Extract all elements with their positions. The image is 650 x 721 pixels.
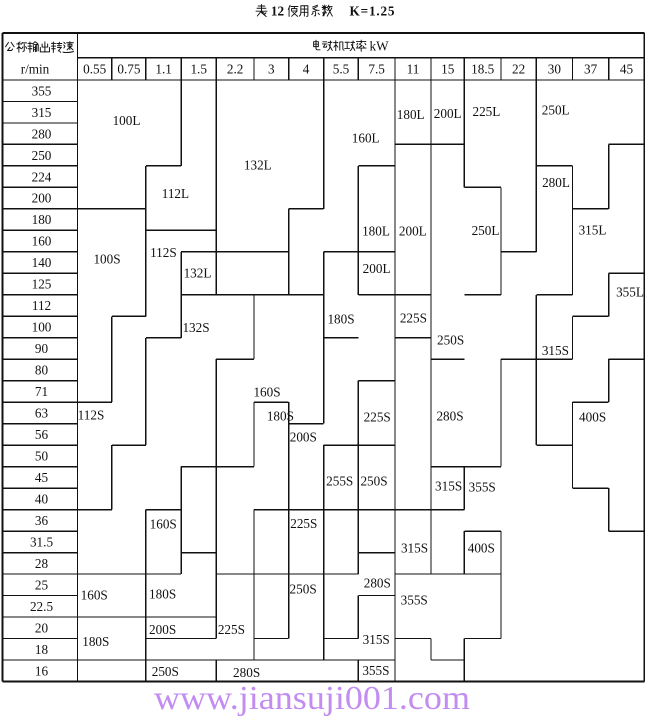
svg-text:www.jiansuji001.com: www.jiansuji001.com <box>154 680 470 717</box>
svg-text:132S: 132S <box>182 320 209 335</box>
svg-text:200: 200 <box>32 191 52 206</box>
svg-text:5.5: 5.5 <box>333 62 350 77</box>
svg-text:250S: 250S <box>290 582 317 597</box>
svg-text:250: 250 <box>32 148 52 163</box>
svg-text:40: 40 <box>35 492 49 507</box>
svg-text:63: 63 <box>35 406 49 421</box>
svg-text:355S: 355S <box>469 479 496 494</box>
svg-text:15: 15 <box>441 62 455 77</box>
svg-text:160: 160 <box>32 234 52 249</box>
svg-text:355L: 355L <box>616 285 644 300</box>
svg-text:100L: 100L <box>113 113 141 128</box>
svg-text:160L: 160L <box>352 131 380 146</box>
svg-text:3: 3 <box>268 62 275 77</box>
svg-text:100: 100 <box>32 320 52 335</box>
svg-text:71: 71 <box>35 384 48 399</box>
svg-text:400S: 400S <box>468 541 495 556</box>
svg-text:225S: 225S <box>364 409 391 424</box>
svg-text:18.5: 18.5 <box>471 62 494 77</box>
svg-text:180S: 180S <box>267 409 294 424</box>
svg-text:200L: 200L <box>399 224 427 239</box>
svg-text:255S: 255S <box>326 473 353 488</box>
svg-text:112: 112 <box>32 298 51 313</box>
svg-text:kW: kW <box>369 39 389 54</box>
svg-text:112L: 112L <box>162 186 189 201</box>
svg-text:250S: 250S <box>152 664 179 679</box>
svg-text:225S: 225S <box>400 311 427 326</box>
svg-text:20: 20 <box>35 620 49 635</box>
svg-text:50: 50 <box>35 449 49 464</box>
svg-text:280S: 280S <box>436 409 463 424</box>
svg-text:225S: 225S <box>218 622 245 637</box>
svg-text:1.1: 1.1 <box>155 62 171 77</box>
svg-text:0.55: 0.55 <box>83 62 106 77</box>
svg-text:22.5: 22.5 <box>30 599 53 614</box>
svg-text:112S: 112S <box>150 245 177 260</box>
svg-text:80: 80 <box>35 363 49 378</box>
svg-text:180S: 180S <box>149 587 176 602</box>
svg-text:22: 22 <box>512 62 525 77</box>
svg-text:315S: 315S <box>542 343 569 358</box>
svg-text:28: 28 <box>35 556 49 571</box>
svg-text:225L: 225L <box>472 104 500 119</box>
svg-text:280S: 280S <box>233 665 260 680</box>
svg-text:25: 25 <box>35 577 49 592</box>
svg-text:315S: 315S <box>363 632 390 647</box>
svg-text:355S: 355S <box>362 663 389 678</box>
svg-text:12: 12 <box>271 4 285 19</box>
svg-text:1.5: 1.5 <box>190 62 207 77</box>
svg-text:250L: 250L <box>472 223 500 238</box>
svg-text:37: 37 <box>584 62 598 77</box>
svg-text:225S: 225S <box>290 516 317 531</box>
svg-text:45: 45 <box>35 470 49 485</box>
svg-text:7.5: 7.5 <box>368 62 385 77</box>
svg-text:11: 11 <box>407 62 420 77</box>
svg-text:140: 140 <box>32 255 52 270</box>
svg-text:160S: 160S <box>253 384 280 399</box>
svg-text:160S: 160S <box>81 587 108 602</box>
svg-text:180L: 180L <box>362 224 390 239</box>
svg-text:30: 30 <box>548 62 562 77</box>
svg-text:180S: 180S <box>82 634 109 649</box>
svg-text:132L: 132L <box>244 157 272 172</box>
svg-text:132L: 132L <box>184 266 212 281</box>
svg-text:315S: 315S <box>435 479 462 494</box>
svg-text:315L: 315L <box>579 222 607 237</box>
svg-text:0.75: 0.75 <box>117 62 140 77</box>
svg-text:45: 45 <box>620 62 634 77</box>
svg-text:224: 224 <box>32 169 52 184</box>
svg-text:400S: 400S <box>579 410 606 425</box>
svg-text:250S: 250S <box>360 473 387 488</box>
svg-text:31.5: 31.5 <box>30 534 53 549</box>
svg-text:180: 180 <box>32 212 52 227</box>
svg-text:180S: 180S <box>327 312 354 327</box>
svg-text:18: 18 <box>35 642 49 657</box>
svg-text:200S: 200S <box>290 430 317 445</box>
svg-text:200L: 200L <box>363 261 391 276</box>
svg-text:16: 16 <box>35 663 49 678</box>
svg-text:112S: 112S <box>78 407 105 422</box>
svg-text:280S: 280S <box>364 575 391 590</box>
svg-text:90: 90 <box>35 341 49 356</box>
svg-text:2.2: 2.2 <box>227 62 243 77</box>
svg-text:4: 4 <box>303 62 310 77</box>
svg-text:36: 36 <box>35 513 49 528</box>
svg-text:315S: 315S <box>401 541 428 556</box>
svg-text:180L: 180L <box>397 107 425 122</box>
svg-text:100S: 100S <box>93 252 120 267</box>
svg-text:280L: 280L <box>542 175 570 190</box>
svg-text:355S: 355S <box>401 593 428 608</box>
svg-text:355: 355 <box>32 83 52 98</box>
svg-text:200S: 200S <box>149 622 176 637</box>
svg-text:125: 125 <box>32 277 52 292</box>
svg-text:K=1.25: K=1.25 <box>350 4 395 19</box>
svg-text:56: 56 <box>35 427 49 442</box>
svg-text:280: 280 <box>32 126 52 141</box>
svg-text:200L: 200L <box>434 106 462 121</box>
svg-text:r/min: r/min <box>21 62 50 77</box>
svg-text:160S: 160S <box>150 516 177 531</box>
svg-text:250S: 250S <box>437 333 464 348</box>
svg-text:250L: 250L <box>542 102 570 117</box>
svg-text:315: 315 <box>32 105 52 120</box>
